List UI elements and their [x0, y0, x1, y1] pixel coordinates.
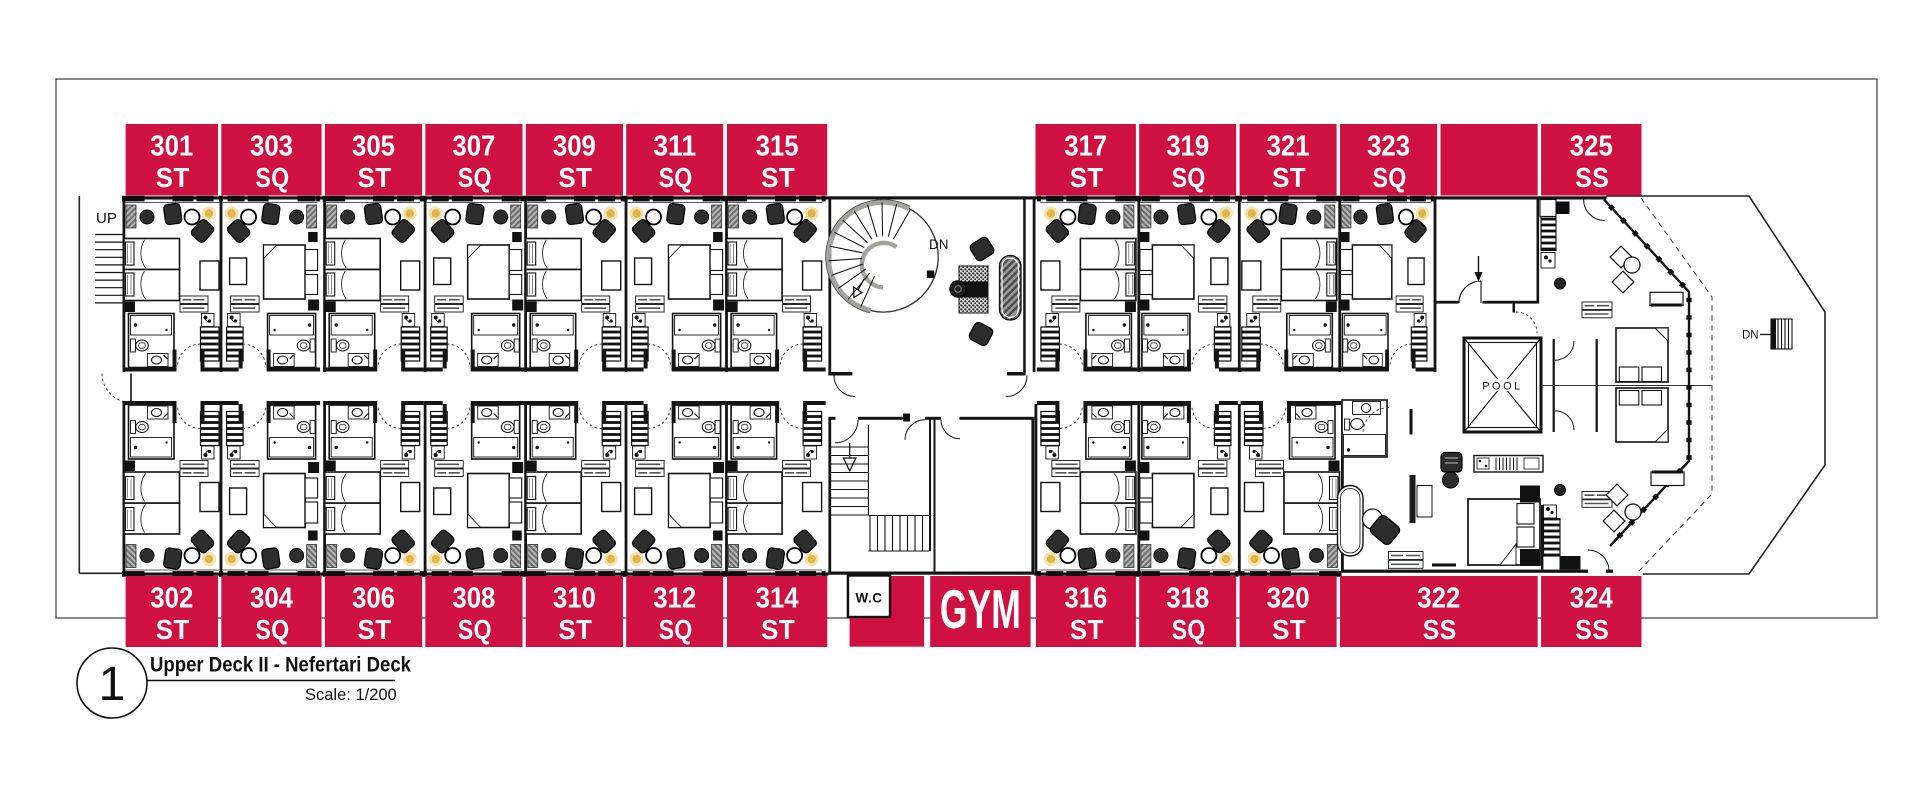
svg-text:SS: SS	[1575, 162, 1609, 193]
svg-text:ST: ST	[156, 614, 190, 645]
svg-text:SQ: SQ	[458, 162, 492, 193]
svg-text:ST: ST	[156, 162, 190, 193]
svg-text:SQ: SQ	[256, 162, 290, 193]
svg-text:ST: ST	[358, 614, 392, 645]
svg-text:Upper Deck II - Nefertari Deck: Upper Deck II - Nefertari Deck	[150, 653, 411, 677]
svg-text:ST: ST	[1070, 614, 1104, 645]
svg-text:306: 306	[352, 583, 395, 615]
svg-text:GYM: GYM	[940, 578, 1021, 640]
svg-text:309: 309	[553, 131, 596, 163]
svg-text:W.C: W.C	[856, 591, 883, 606]
svg-text:311: 311	[653, 131, 696, 163]
svg-text:ST: ST	[558, 614, 592, 645]
svg-text:312: 312	[653, 583, 696, 615]
svg-text:ST: ST	[1070, 162, 1104, 193]
svg-text:308: 308	[452, 583, 495, 615]
svg-text:SS: SS	[1575, 614, 1609, 645]
svg-text:317: 317	[1064, 131, 1107, 163]
svg-text:322: 322	[1417, 583, 1460, 615]
svg-text:Scale: 1/200: Scale: 1/200	[305, 686, 397, 704]
svg-text:1: 1	[99, 658, 126, 711]
svg-text:301: 301	[150, 131, 193, 163]
svg-text:ST: ST	[761, 162, 795, 193]
svg-text:SQ: SQ	[1172, 614, 1206, 645]
svg-text:320: 320	[1267, 583, 1310, 615]
svg-text:ST: ST	[1272, 162, 1306, 193]
svg-text:ST: ST	[558, 162, 592, 193]
svg-text:321: 321	[1267, 131, 1310, 163]
svg-text:314: 314	[756, 583, 799, 615]
svg-text:303: 303	[250, 131, 293, 163]
svg-text:323: 323	[1367, 131, 1410, 163]
svg-text:302: 302	[150, 583, 193, 615]
svg-text:316: 316	[1064, 583, 1107, 615]
svg-text:ST: ST	[358, 162, 392, 193]
svg-text:POOL: POOL	[1482, 381, 1523, 393]
svg-text:319: 319	[1166, 131, 1209, 163]
svg-text:SQ: SQ	[1172, 162, 1206, 193]
svg-text:SQ: SQ	[458, 614, 492, 645]
svg-text:SQ: SQ	[659, 614, 693, 645]
svg-text:DN: DN	[1742, 330, 1759, 342]
svg-text:SQ: SQ	[256, 614, 290, 645]
svg-text:ST: ST	[761, 614, 795, 645]
svg-text:315: 315	[756, 131, 799, 163]
svg-text:304: 304	[250, 583, 293, 615]
svg-text:SQ: SQ	[1373, 162, 1407, 193]
svg-text:310: 310	[553, 583, 596, 615]
svg-text:307: 307	[452, 131, 495, 163]
svg-text:305: 305	[352, 131, 395, 163]
svg-text:325: 325	[1570, 131, 1613, 163]
svg-text:SQ: SQ	[659, 162, 693, 193]
svg-text:324: 324	[1570, 583, 1613, 615]
svg-text:SS: SS	[1423, 614, 1457, 645]
svg-text:UP: UP	[96, 210, 117, 227]
svg-text:318: 318	[1166, 583, 1209, 615]
svg-text:ST: ST	[1272, 614, 1306, 645]
svg-text:DN: DN	[929, 237, 949, 252]
